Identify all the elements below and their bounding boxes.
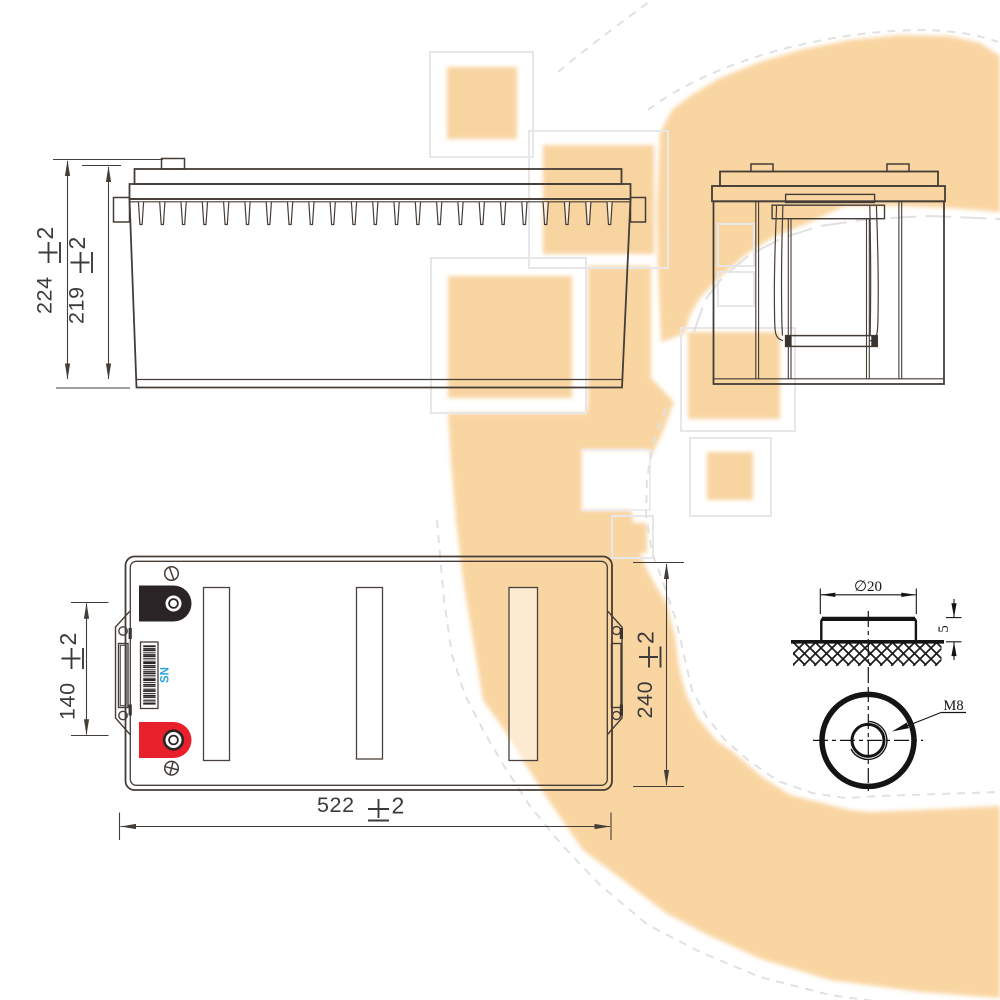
svg-text:2: 2	[392, 793, 405, 819]
svg-text:224: 224	[33, 276, 57, 314]
svg-text:2: 2	[32, 227, 58, 240]
svg-text:522: 522	[317, 793, 355, 817]
svg-text:5: 5	[936, 625, 952, 633]
svg-text:∅20: ∅20	[854, 579, 882, 595]
svg-text:140: 140	[56, 682, 80, 720]
svg-text:M8: M8	[943, 698, 963, 714]
svg-text:219: 219	[65, 286, 89, 324]
svg-text:2: 2	[55, 633, 81, 646]
svg-text:240: 240	[633, 681, 657, 719]
svg-text:SN: SN	[160, 667, 172, 683]
svg-text:2: 2	[633, 631, 659, 644]
svg-text:2: 2	[64, 237, 90, 250]
